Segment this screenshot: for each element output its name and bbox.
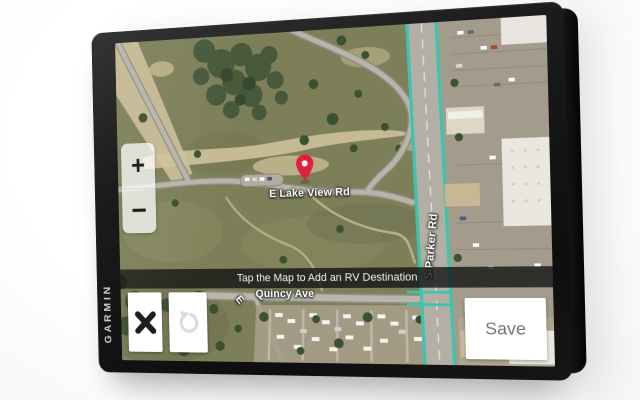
save-button[interactable]: Save (464, 298, 547, 360)
garmin-logo: GARMIN (102, 284, 114, 344)
destination-pin-icon (296, 154, 314, 180)
minus-icon: − (131, 196, 147, 225)
instruction-banner: Tap the Map to Add an RV Destination (120, 266, 553, 289)
undo-button[interactable] (168, 292, 207, 352)
device-bezel: GARMIN (91, 1, 572, 381)
undo-icon (176, 310, 200, 335)
product-photo-scene: GARMIN (0, 0, 640, 400)
garmin-device: GARMIN (91, 1, 572, 381)
x-icon (133, 309, 158, 335)
street-label-quincy: Quincy Ave (255, 288, 314, 300)
zoom-control-panel: + − (121, 143, 157, 234)
device-screen: E Lake View Rd Quincy Ave E S Parker Rd … (115, 15, 555, 367)
zoom-in-button[interactable]: + (121, 143, 156, 189)
zoom-out-button[interactable]: − (122, 187, 157, 233)
close-button[interactable] (128, 292, 163, 352)
plus-icon: + (131, 152, 146, 178)
